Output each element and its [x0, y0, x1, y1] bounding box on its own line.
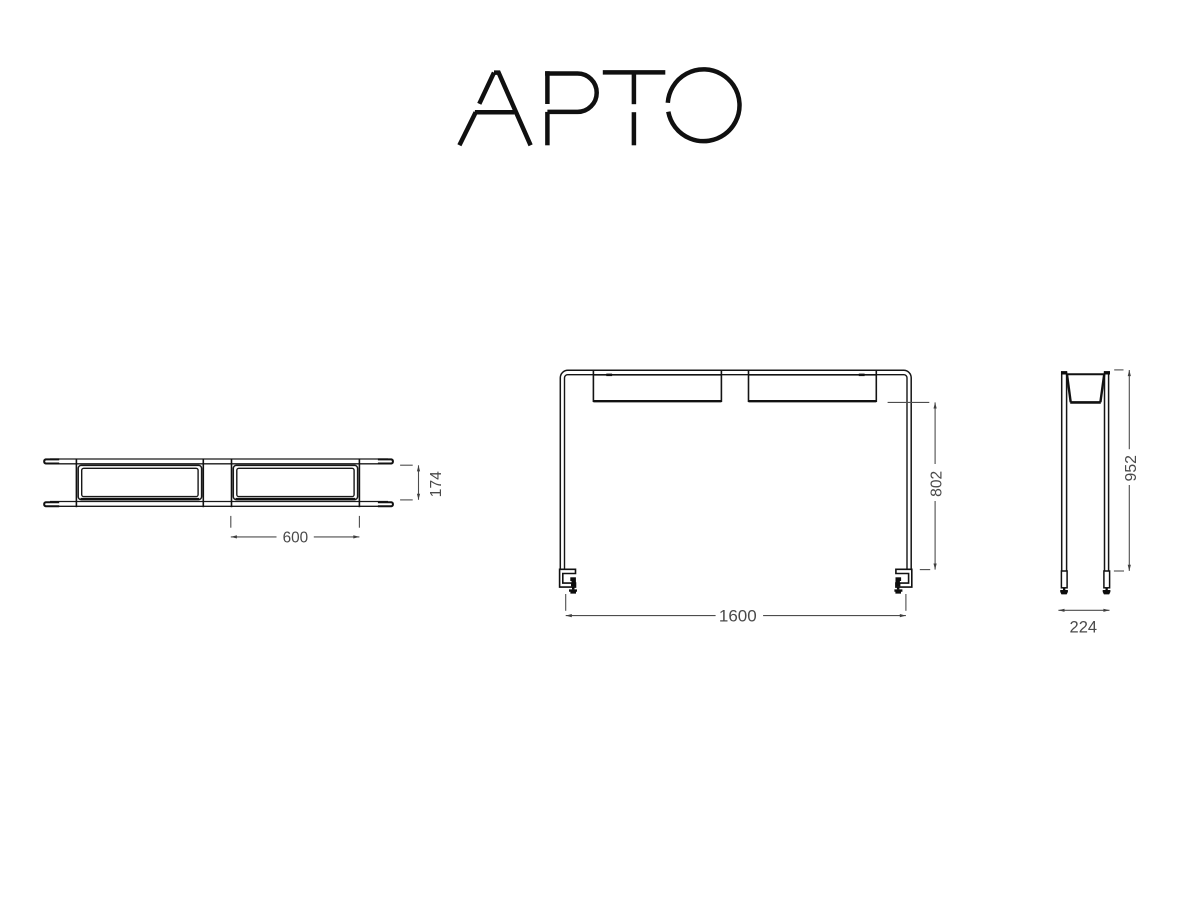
- svg-text:224: 224: [1070, 618, 1098, 636]
- svg-text:952: 952: [1123, 455, 1140, 481]
- svg-text:600: 600: [283, 530, 309, 547]
- svg-text:1600: 1600: [719, 607, 757, 626]
- svg-text:802: 802: [928, 471, 945, 497]
- svg-text:174: 174: [428, 471, 445, 497]
